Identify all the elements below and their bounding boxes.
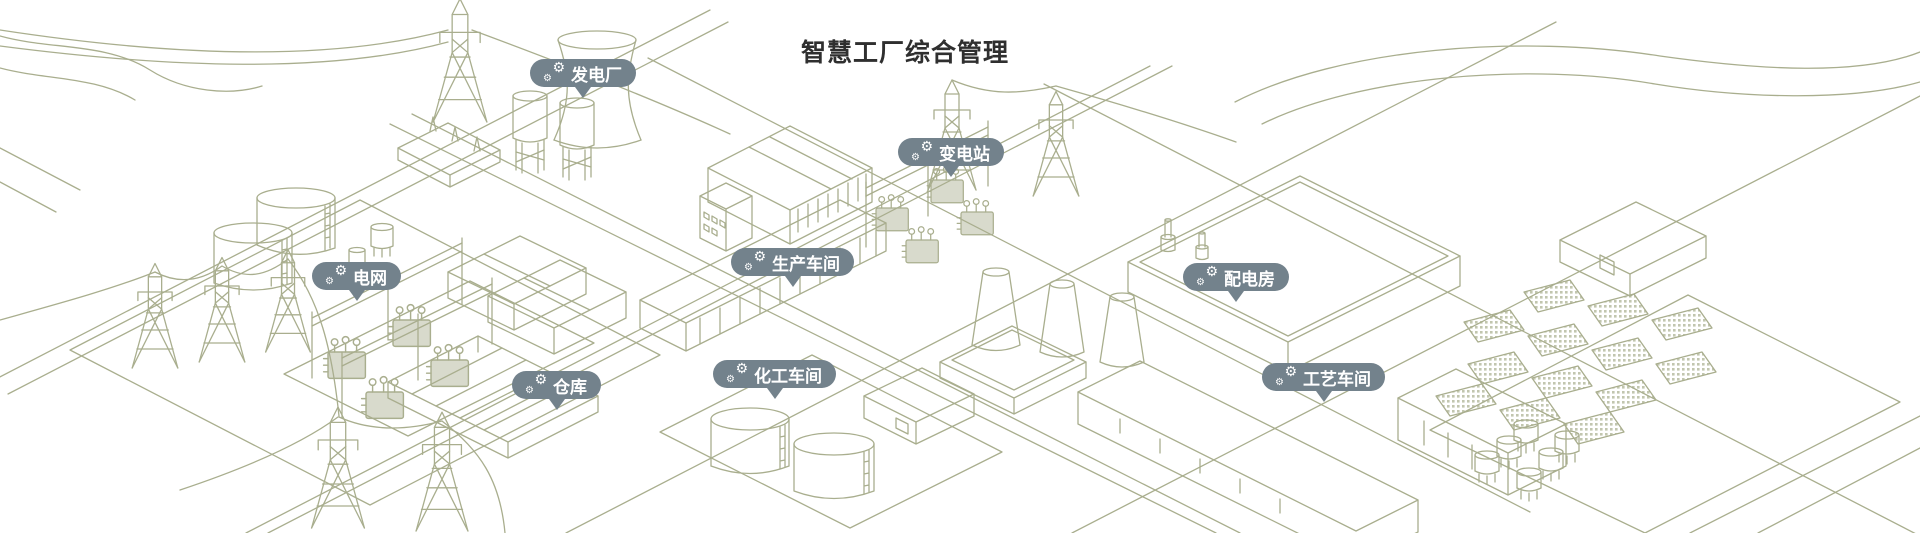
- map-pin-layer: ⚙⚙ 发电厂 ⚙⚙ 变电站 ⚙⚙ 电网 ⚙⚙ 生产车间 ⚙⚙ 配电房 ⚙⚙ 仓库: [0, 0, 1920, 533]
- gears-icon: ⚙⚙: [912, 142, 932, 162]
- map-pin-warehouse[interactable]: ⚙⚙ 仓库: [512, 371, 601, 399]
- map-pin-label: 配电房: [1224, 265, 1275, 290]
- gears-icon: ⚙⚙: [526, 375, 546, 395]
- map-pin-production-workshop[interactable]: ⚙⚙ 生产车间: [731, 248, 854, 276]
- map-pin-label: 电网: [353, 264, 387, 289]
- gears-icon: ⚙⚙: [745, 252, 765, 272]
- map-pin-power-grid[interactable]: ⚙⚙ 电网: [312, 262, 401, 290]
- gears-icon: ⚙⚙: [1197, 267, 1217, 287]
- map-pin-power-plant[interactable]: ⚙⚙ 发电厂: [530, 59, 636, 87]
- map-pin-chemical-workshop[interactable]: ⚙⚙ 化工车间: [713, 360, 836, 388]
- map-pin-label: 化工车间: [754, 362, 822, 387]
- map-pin-label: 工艺车间: [1303, 365, 1371, 390]
- map-pin-label: 变电站: [939, 140, 990, 165]
- map-pin-label: 生产车间: [772, 250, 840, 275]
- gears-icon: ⚙⚙: [326, 266, 346, 286]
- gears-icon: ⚙⚙: [544, 63, 564, 83]
- map-pin-label: 发电厂: [571, 61, 622, 86]
- gears-icon: ⚙⚙: [727, 364, 747, 384]
- map-pin-process-workshop[interactable]: ⚙⚙ 工艺车间: [1262, 363, 1385, 391]
- map-pin-label: 仓库: [553, 373, 587, 398]
- map-pin-substation[interactable]: ⚙⚙ 变电站: [898, 138, 1004, 166]
- smart-factory-dashboard: 智慧工厂综合管理 ⚙⚙ 发电厂 ⚙⚙ 变电站 ⚙⚙ 电网 ⚙⚙ 生产车间 ⚙⚙ …: [0, 0, 1920, 533]
- gears-icon: ⚙⚙: [1276, 367, 1296, 387]
- map-pin-distribution-room[interactable]: ⚙⚙ 配电房: [1183, 263, 1289, 291]
